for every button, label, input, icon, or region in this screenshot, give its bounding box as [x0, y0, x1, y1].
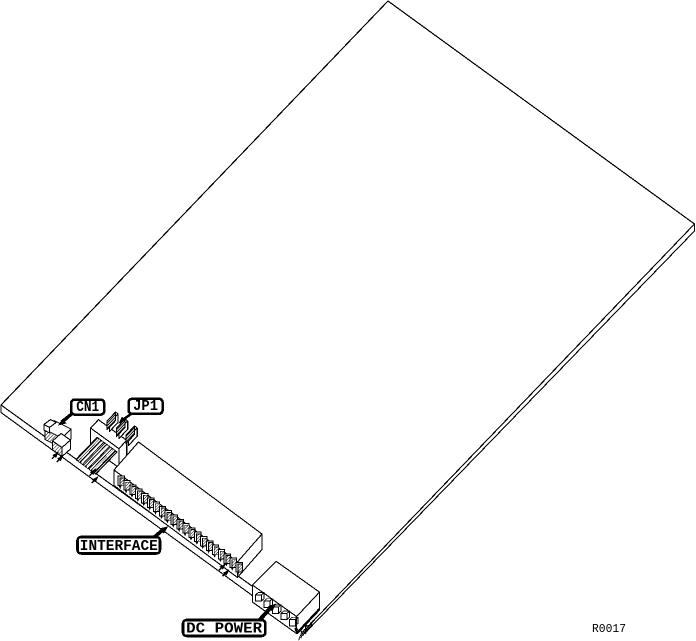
svg-text:CN1: CN1 — [76, 399, 99, 416]
svg-text:DC POWER: DC POWER — [186, 620, 262, 637]
svg-text:R0017: R0017 — [592, 622, 626, 636]
svg-text:INTERFACE: INTERFACE — [80, 538, 158, 555]
svg-text:JP1: JP1 — [133, 398, 158, 415]
